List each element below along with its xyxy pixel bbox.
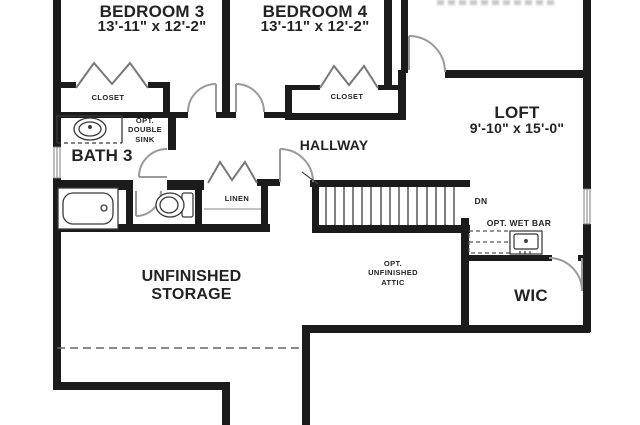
room-label-unfinished-storage: UNFINISHED STORAGE [123,268,260,305]
room-dims-bedroom3: 13'-11" x 12'-2" [72,19,232,36]
opt-wet-bar-label: OPT. WET BAR [477,219,561,229]
room-dims-loft: 9'-10" x 15'-0" [447,121,587,137]
opt-double-sink-label: OPT. DOUBLE SINK [124,116,166,144]
vanity-sink-icon [57,116,122,143]
room-label-wic: WIC [500,286,562,305]
room-label-bath3: BATH 3 [62,146,142,165]
room-label-opt-unfinished-attic: OPT. UNFINISHED ATTIC [359,259,427,287]
room-label-hallway: HALLWAY [284,138,384,154]
closet-label-bedroom3: CLOSET [78,93,138,102]
toilet-icon [156,193,193,217]
room-dims-bedroom4: 13'-11" x 12'-2" [235,19,395,36]
floorplan: BEDROOM 3 13'-11" x 12'-2" BEDROOM 4 13'… [0,0,640,425]
stairs [302,172,454,225]
linen-label: LINEN [212,194,262,203]
stairs-dn-label: DN [468,197,494,207]
floorplan-drawing [0,0,640,425]
bathtub-icon [58,188,118,229]
cutoff-room-label [437,0,555,5]
walls [53,0,591,425]
wet-bar-sink-icon [469,231,542,254]
closet-label-bedroom4: CLOSET [317,92,377,101]
